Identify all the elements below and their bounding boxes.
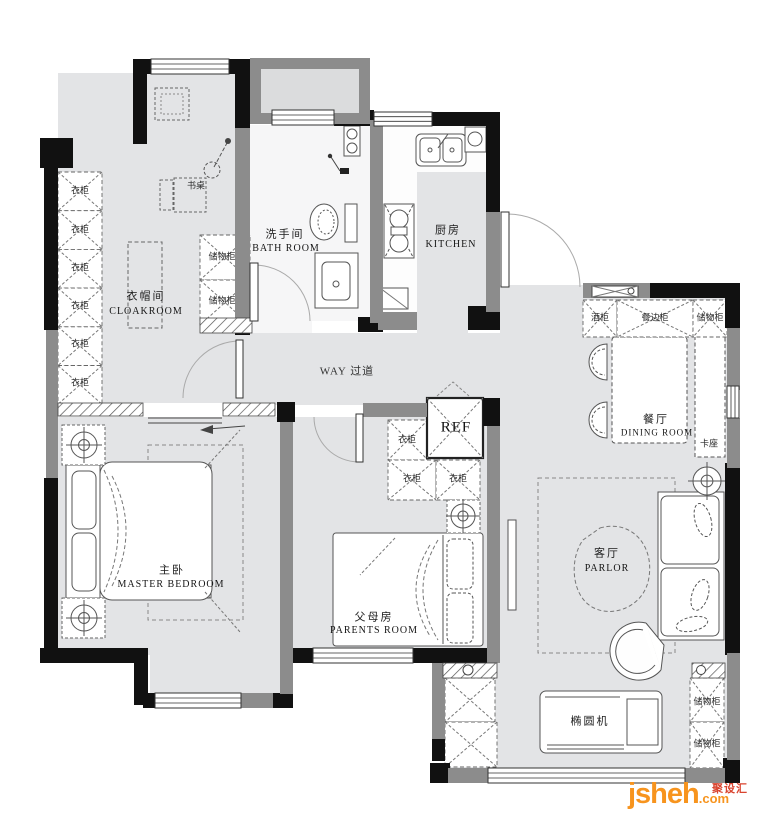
- sideboard-label: 餐边柜: [641, 314, 668, 323]
- dining-label-cn: 餐厅: [643, 415, 669, 426]
- storage-label: 储物柜: [208, 297, 235, 306]
- storage-label: 储物柜: [208, 253, 235, 262]
- wine-cabinet-label: 酒柜: [591, 314, 609, 323]
- cabinet-knob-right: [697, 666, 706, 675]
- desk-label: 书桌: [187, 182, 205, 191]
- storage-label: 储物柜: [696, 314, 723, 323]
- cabinet-knob-left: [463, 665, 473, 675]
- bathroom-label-cn: 洗手间: [266, 230, 305, 241]
- wardrobe-label: 衣柜: [449, 475, 467, 484]
- wardrobe-label: 衣柜: [71, 264, 89, 273]
- shoe-bench: [592, 286, 638, 297]
- watermark-logo: jsheh.com 聚设汇: [628, 780, 778, 822]
- kitchen-sink: [416, 134, 466, 166]
- booth-label: 卡座: [700, 440, 718, 449]
- parlor-label-en: PARLOR: [585, 564, 630, 574]
- parents-label-en: PARENTS ROOM: [330, 626, 418, 636]
- shaft-inner: [261, 69, 359, 113]
- master-label-cn: 主卧: [159, 566, 185, 577]
- cloakroom-label-cn: 衣帽间: [127, 292, 166, 303]
- elliptical-label: 椭圆机: [571, 717, 610, 728]
- floor-plan: 书桌 储物柜 储物柜 衣帽间 CLOAKROOM 洗手间 BATH ROOM 厨…: [0, 0, 780, 825]
- storage-label: 储物柜: [693, 740, 720, 749]
- vanity: [315, 253, 358, 308]
- parlor-label-cn: 客厅: [594, 549, 620, 560]
- watermark-brand: jsheh: [628, 778, 699, 810]
- tv-panel: [508, 520, 516, 610]
- sofa: [658, 492, 724, 640]
- corner-flue: [465, 127, 486, 152]
- storage-label: 储物柜: [693, 698, 720, 707]
- fridge-label: REF: [441, 421, 472, 436]
- kitchen-label-cn: 厨房: [435, 226, 461, 237]
- wardrobe-label: 衣柜: [71, 340, 89, 349]
- wardrobe-label: 衣柜: [71, 187, 89, 196]
- washer-stack: [344, 126, 360, 156]
- dining-label-en: DINING ROOM: [621, 429, 693, 438]
- corridor-label: WAY 过道: [320, 367, 374, 378]
- floor-plan-drawing: [0, 0, 780, 825]
- kitchen-label-en: KITCHEN: [426, 240, 477, 250]
- wardrobe-label: 衣柜: [398, 436, 416, 445]
- master-label-en: MASTER BEDROOM: [117, 580, 224, 590]
- wardrobe-label: 衣柜: [71, 226, 89, 235]
- wardrobe-label: 衣柜: [71, 379, 89, 388]
- wardrobe-label: 衣柜: [71, 302, 89, 311]
- cloakroom-label-en: CLOAKROOM: [109, 307, 182, 317]
- wardrobe-label: 衣柜: [403, 475, 421, 484]
- watermark-cn: 聚设汇: [712, 780, 748, 796]
- bathroom-label-en: BATH ROOM: [252, 244, 320, 254]
- entry-door: [501, 212, 580, 287]
- parents-label-cn: 父母房: [355, 613, 394, 624]
- stove: [384, 204, 414, 258]
